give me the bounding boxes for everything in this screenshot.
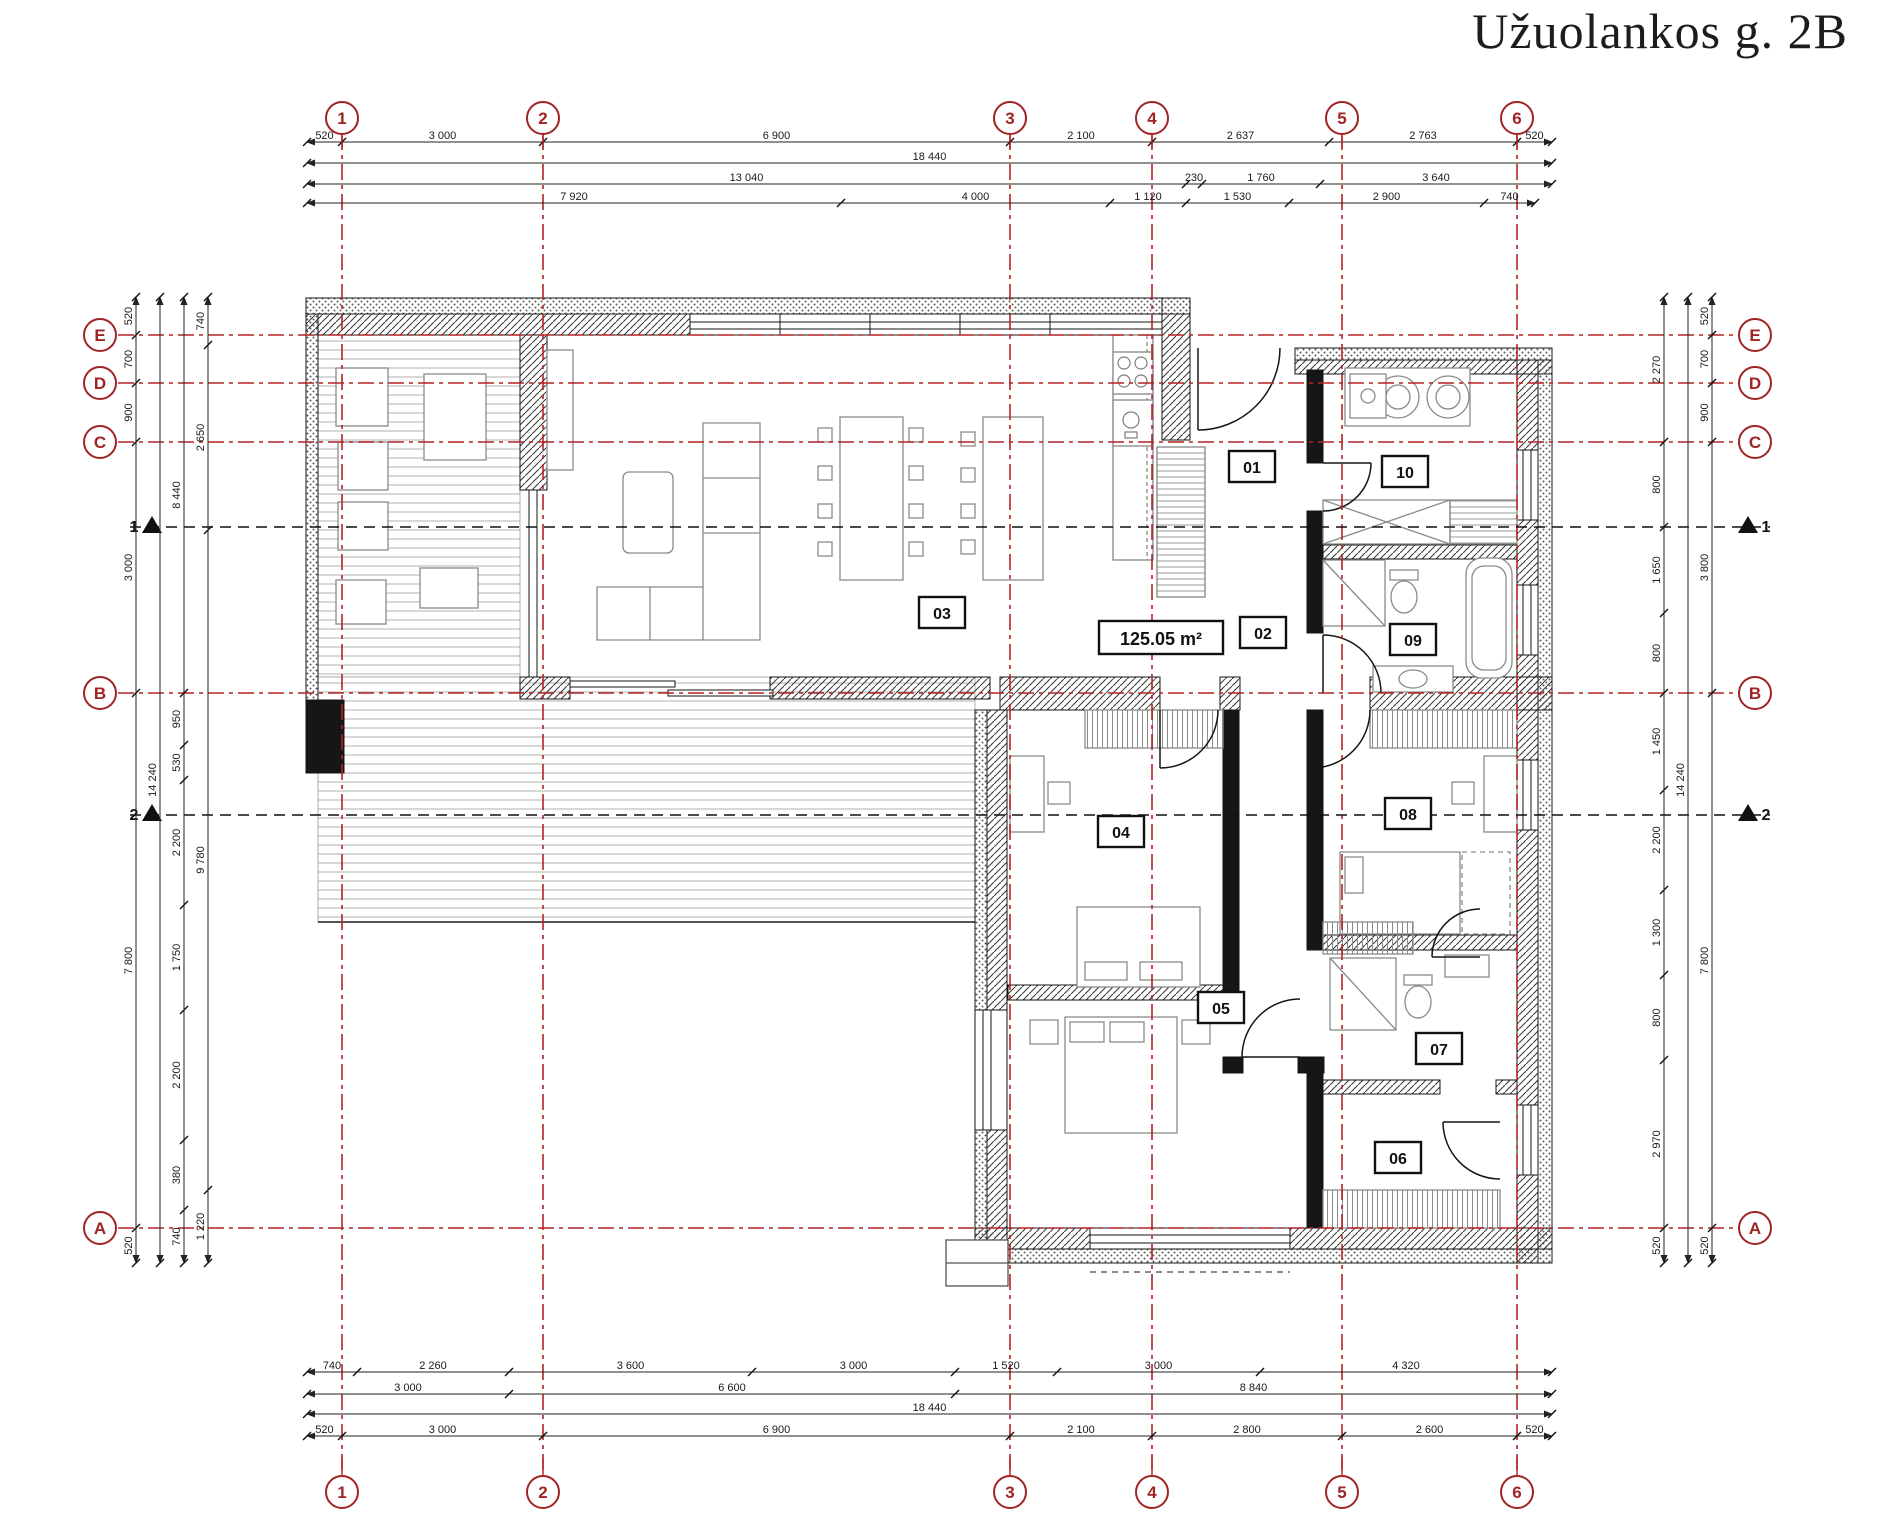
dim-chain-horizontal: 3 0006 6008 840 [303, 1382, 1556, 1398]
dim-value: 1 520 [992, 1360, 1020, 1372]
grid-bubble-bottom-4: 4 [1136, 1476, 1168, 1508]
grid-bubble-right-E: E [1739, 319, 1771, 351]
svg-text:125.05 m²: 125.05 m² [1120, 629, 1202, 649]
wardrobe-08 [1370, 710, 1517, 748]
toilet-icon-07 [1405, 986, 1431, 1018]
dim-value: 3 000 [1145, 1360, 1173, 1372]
door-06 [1443, 1122, 1500, 1179]
dim-value: 800 [1651, 644, 1663, 662]
section-marker-icon [1738, 804, 1758, 821]
dim-value: 3 000 [123, 554, 135, 582]
dim-chain-horizontal: 13 0402301 7603 640 [303, 172, 1556, 188]
svg-text:1: 1 [337, 1483, 346, 1502]
dim-value: 1 650 [1651, 556, 1663, 584]
window-wing-left [975, 1010, 1007, 1130]
dim-value: 3 000 [394, 1382, 422, 1394]
sink-icon [1113, 400, 1153, 446]
section-marker-icon [142, 516, 162, 533]
grid-bubble-left-E: E [84, 319, 116, 351]
dim-value: 2 763 [1409, 130, 1437, 142]
dim-value: 13 040 [730, 172, 764, 184]
dim-value: 4 320 [1392, 1360, 1420, 1372]
dim-value: 900 [123, 403, 135, 421]
section-marker-icon [142, 804, 162, 821]
dim-value: 7 800 [123, 947, 135, 975]
dim-value: 8 440 [171, 481, 183, 509]
pantry-shelves [1157, 447, 1205, 597]
svg-text:5: 5 [1337, 1483, 1346, 1502]
dim-value: 3 000 [429, 130, 457, 142]
dim-value: 1 120 [1134, 191, 1162, 203]
svg-text:2: 2 [538, 1483, 547, 1502]
grid-bubble-left-B: B [84, 677, 116, 709]
svg-text:10: 10 [1396, 465, 1414, 482]
svg-text:04: 04 [1112, 825, 1130, 842]
window-top [690, 314, 1162, 335]
dim-value: 740 [171, 1227, 183, 1245]
svg-text:C: C [1749, 433, 1761, 452]
svg-text:B: B [1749, 684, 1761, 703]
dim-value: 4 000 [962, 191, 990, 203]
dim-value: 1 450 [1651, 728, 1663, 756]
dim-value: 520 [1699, 1236, 1711, 1254]
svg-text:D: D [94, 374, 106, 393]
grid-bubble-top-3: 3 [994, 102, 1026, 134]
page-title: Užuolankos g. 2B [1472, 2, 1848, 60]
svg-text:B: B [94, 684, 106, 703]
grid-bubble-bottom-3: 3 [994, 1476, 1026, 1508]
dim-value: 2 200 [171, 1061, 183, 1089]
grid-bubble-right-A: A [1739, 1212, 1771, 1244]
dim-value: 1 300 [1651, 919, 1663, 947]
section-marker-label: 1 [130, 519, 139, 536]
section-marker-icon [1738, 516, 1758, 533]
dim-chain-horizontal: 7 9204 0001 1201 5302 900740 [303, 191, 1539, 207]
dim-value: 520 [1699, 307, 1711, 325]
dim-value: 7 920 [560, 191, 588, 203]
dim-value: 18 440 [913, 1402, 947, 1414]
dim-value: 2 800 [1233, 1424, 1261, 1436]
dim-chain-horizontal: 5203 0006 9002 1002 6372 763520 [303, 130, 1556, 146]
dim-chain-vertical: 14 240 [147, 293, 164, 1267]
grid-bubble-top-5: 5 [1326, 102, 1358, 134]
dim-value: 2 100 [1067, 130, 1095, 142]
svg-text:E: E [1749, 326, 1760, 345]
dim-chain-vertical: 5207009003 0007 800520 [123, 293, 140, 1267]
dim-value: 520 [1525, 130, 1543, 142]
room-label-01: 01 [1229, 451, 1275, 482]
door-05 [1242, 999, 1300, 1057]
svg-text:4: 4 [1147, 109, 1157, 128]
wardrobe-06 [1323, 1190, 1500, 1228]
svg-text:3: 3 [1005, 1483, 1014, 1502]
dim-value: 2 100 [1067, 1424, 1095, 1436]
wardrobe-07 [1323, 922, 1413, 954]
dim-value: 2 270 [1651, 356, 1663, 384]
svg-text:08: 08 [1399, 807, 1417, 824]
grid-bubble-left-D: D [84, 367, 116, 399]
dim-value: 3 000 [429, 1424, 457, 1436]
grid-bubble-right-C: C [1739, 426, 1771, 458]
svg-text:01: 01 [1243, 460, 1261, 477]
dim-value: 3 640 [1422, 172, 1450, 184]
tv-bench [547, 350, 573, 470]
dim-value: 230 [1185, 172, 1203, 184]
grid-bubble-top-4: 4 [1136, 102, 1168, 134]
dim-value: 740 [195, 312, 207, 330]
dim-value: 2 970 [1651, 1130, 1663, 1158]
sofa [597, 423, 760, 640]
dim-value: 1 750 [171, 944, 183, 972]
dim-value: 2 260 [419, 1360, 447, 1372]
grid-bubble-right-D: D [1739, 367, 1771, 399]
dim-value: 520 [1651, 1236, 1663, 1254]
dim-value: 900 [1699, 403, 1711, 421]
room-label-06: 06 [1375, 1142, 1421, 1173]
floor-plan-drawing: 1122 5203 0006 9002 1002 6372 76352018 4… [0, 0, 1900, 1538]
dim-value: 740 [323, 1360, 341, 1372]
dim-value: 6 900 [763, 130, 791, 142]
dim-value: 2 200 [171, 829, 183, 857]
svg-text:5: 5 [1337, 109, 1346, 128]
section-marker-label: 1 [1762, 519, 1771, 536]
svg-text:6: 6 [1512, 1483, 1521, 1502]
dim-value: 520 [315, 1424, 333, 1436]
room-label-07: 07 [1416, 1033, 1462, 1064]
dim-value: 9 780 [195, 846, 207, 874]
dim-value: 520 [315, 130, 333, 142]
bathroom-07 [1330, 955, 1489, 1030]
svg-text:A: A [94, 1219, 106, 1238]
wardrobe-04 [1085, 710, 1223, 748]
door-entry [1198, 348, 1280, 430]
dim-value: 2 650 [195, 424, 207, 452]
dim-value: 1 220 [195, 1213, 207, 1241]
dim-value: 7 800 [1699, 947, 1711, 975]
dim-value: 2 900 [1373, 191, 1401, 203]
dim-chain-horizontal: 18 440 [303, 151, 1556, 167]
dim-value: 520 [123, 1236, 135, 1254]
svg-text:6: 6 [1512, 109, 1521, 128]
room-label-09: 09 [1390, 624, 1436, 655]
dim-chain-vertical: 8 4409505302 2001 7502 200380740 [171, 293, 188, 1267]
grid-bubble-bottom-6: 6 [1501, 1476, 1533, 1508]
dim-value: 2 600 [1416, 1424, 1444, 1436]
dim-value: 8 840 [1240, 1382, 1268, 1394]
dim-value: 2 200 [1651, 826, 1663, 854]
grid-bubble-left-A: A [84, 1212, 116, 1244]
room-label-05: 05 [1198, 992, 1244, 1023]
desk-04 [1010, 756, 1044, 832]
desk-08 [1484, 756, 1517, 832]
floor-plan-page: Užuolankos g. 2B [0, 0, 1900, 1538]
dim-value: 950 [171, 710, 183, 728]
svg-text:C: C [94, 433, 106, 452]
coffee-table [623, 472, 673, 553]
dim-value: 520 [123, 307, 135, 325]
dim-chain-horizontal: 5203 0006 9002 1002 8002 600520 [303, 1424, 1556, 1440]
toilet-icon [1391, 581, 1417, 613]
room-label-03: 03 [919, 597, 965, 628]
dim-value: 1 530 [1224, 191, 1252, 203]
dim-chain-vertical: 2 2708001 6508001 4502 2001 3008002 9705… [1651, 293, 1668, 1267]
dim-value: 6 900 [763, 1424, 791, 1436]
dim-value: 6 600 [718, 1382, 746, 1394]
room-label-04: 04 [1098, 816, 1144, 847]
svg-text:02: 02 [1254, 626, 1272, 643]
room-label-02: 02 [1240, 617, 1286, 648]
dim-value: 700 [123, 350, 135, 368]
svg-text:06: 06 [1389, 1151, 1407, 1168]
kitchen [1113, 335, 1205, 597]
svg-text:1: 1 [337, 109, 346, 128]
dim-chain-horizontal: 18 440 [303, 1402, 1556, 1418]
dim-value: 380 [171, 1166, 183, 1184]
dim-chain-vertical: 5207009003 8007 800520 [1699, 293, 1716, 1267]
dim-value: 1 760 [1247, 172, 1275, 184]
dim-value: 2 637 [1227, 130, 1255, 142]
svg-text:4: 4 [1147, 1483, 1157, 1502]
dim-value: 14 240 [147, 763, 159, 797]
dim-value: 3 600 [617, 1360, 645, 1372]
svg-text:E: E [94, 326, 105, 345]
dim-value: 18 440 [913, 151, 947, 163]
svg-text:03: 03 [933, 606, 951, 623]
svg-text:A: A [1749, 1219, 1761, 1238]
dim-value: 530 [171, 753, 183, 771]
grid-bubble-top-2: 2 [527, 102, 559, 134]
dim-value: 800 [1651, 1008, 1663, 1026]
dim-chain-vertical: 14 240 [1675, 293, 1692, 1267]
room-label-08: 08 [1385, 798, 1431, 829]
grid-bubble-top-1: 1 [326, 102, 358, 134]
dim-chain-vertical: 7402 6509 7801 220 [195, 293, 212, 1267]
closet-x [1323, 500, 1517, 544]
grid-bubble-right-B: B [1739, 677, 1771, 709]
svg-text:05: 05 [1212, 1001, 1230, 1018]
dim-chain-horizontal: 7402 2603 6003 0001 5203 0004 320 [303, 1360, 1556, 1376]
dim-value: 700 [1699, 350, 1711, 368]
area-label: 125.05 m² [1099, 621, 1223, 654]
dim-value: 3 000 [840, 1360, 868, 1372]
dim-value: 740 [1500, 191, 1518, 203]
grid-bubble-bottom-1: 1 [326, 1476, 358, 1508]
dim-value: 3 800 [1699, 554, 1711, 582]
dim-value: 800 [1651, 475, 1663, 493]
dim-value: 520 [1525, 1424, 1543, 1436]
svg-text:09: 09 [1404, 633, 1422, 650]
section-marker-label: 2 [1762, 807, 1771, 824]
section-marker-label: 2 [130, 807, 139, 824]
grid-bubble-bottom-2: 2 [527, 1476, 559, 1508]
grid-bubble-left-C: C [84, 426, 116, 458]
dim-value: 14 240 [1675, 763, 1687, 797]
svg-text:3: 3 [1005, 109, 1014, 128]
stove-icon [1113, 352, 1153, 394]
grid-bubble-top-6: 6 [1501, 102, 1533, 134]
svg-text:07: 07 [1430, 1042, 1448, 1059]
grid-bubble-bottom-5: 5 [1326, 1476, 1358, 1508]
svg-text:D: D [1749, 374, 1761, 393]
svg-text:2: 2 [538, 109, 547, 128]
room-label-10: 10 [1382, 456, 1428, 487]
